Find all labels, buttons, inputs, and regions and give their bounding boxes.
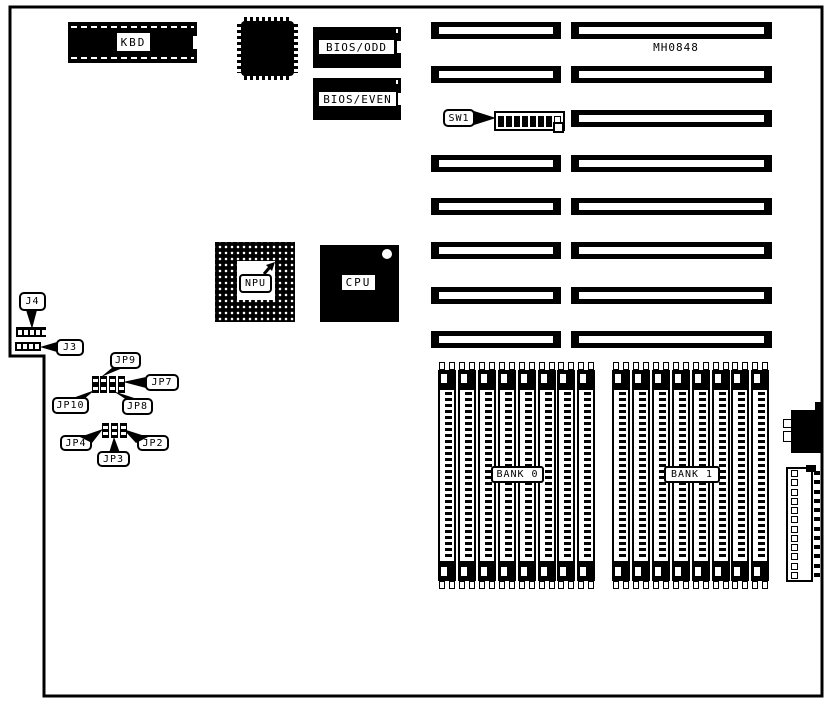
power-pin-square <box>791 470 798 477</box>
expansion-slot-segment-short <box>431 66 561 83</box>
simm-tab <box>529 581 535 589</box>
simm-tab-row <box>751 581 769 589</box>
simm-contact-body <box>751 388 769 563</box>
simm-tab-row <box>498 581 516 589</box>
cpu-chip: CPU <box>320 245 399 322</box>
power-pin-square <box>791 563 798 570</box>
power-connector-top-tab <box>806 465 816 472</box>
expansion-slot-segment-short <box>431 198 561 215</box>
simm-tab-row <box>672 362 690 370</box>
pin-square <box>17 344 21 349</box>
sw1-pointer <box>474 111 496 125</box>
jp10-label-bubble: JP10 <box>52 397 89 414</box>
simm-tab <box>489 581 495 589</box>
simm-tab <box>713 581 719 589</box>
power-pin-square <box>791 479 798 486</box>
simm-tab <box>713 362 719 370</box>
pin-square <box>30 330 34 335</box>
jumper-block-6 <box>111 423 118 438</box>
dip-switch-cell <box>514 116 520 127</box>
simm-clip-top <box>458 370 476 388</box>
simm-tab-row <box>478 362 496 370</box>
dip-switch-cell <box>538 116 544 127</box>
j3-connector <box>15 342 41 351</box>
simm-tab <box>703 581 709 589</box>
simm-tab <box>623 362 629 370</box>
simm-tab-row <box>692 362 710 370</box>
jp4-label-bubble: JP4 <box>60 435 92 451</box>
simm-socket <box>577 362 595 589</box>
simm-clip-top <box>731 370 749 388</box>
power-pin <box>814 564 820 568</box>
simm-clip-top <box>632 370 650 388</box>
simm-tab <box>643 581 649 589</box>
simm-tab <box>578 581 584 589</box>
simm-tab-row <box>731 581 749 589</box>
simm-tab-row <box>751 362 769 370</box>
din-port-upper <box>783 419 792 428</box>
simm-tab <box>529 362 535 370</box>
simm-contact-body <box>577 388 595 563</box>
simm-tab-row <box>518 581 536 589</box>
simm-clip-top <box>692 370 710 388</box>
simm-tab-row <box>458 581 476 589</box>
jp7-label-bubble: JP7 <box>145 374 179 391</box>
jp3-label-bubble: JP3 <box>97 451 130 467</box>
simm-clip-top <box>438 370 456 388</box>
simm-tab <box>558 362 564 370</box>
simm-socket <box>438 362 456 589</box>
simm-clip-bottom <box>712 563 730 581</box>
j3-label-bubble: J3 <box>56 339 84 356</box>
expansion-slot-segment-long <box>571 242 772 259</box>
simm-tab-row <box>557 581 575 589</box>
dip-switch-cell <box>546 116 552 127</box>
cpu-pin1-dot <box>382 249 392 259</box>
simm-contact-body <box>612 388 630 563</box>
simm-tab <box>588 581 594 589</box>
simm-tab-row <box>458 362 476 370</box>
simm-tab <box>588 362 594 370</box>
simm-clip-bottom <box>557 563 575 581</box>
simm-clip-bottom <box>518 563 536 581</box>
simm-tab-row <box>538 362 556 370</box>
simm-tab <box>519 362 525 370</box>
bank0-label-bubble: BANK 0 <box>491 466 544 483</box>
simm-tab-row <box>538 581 556 589</box>
simm-tab <box>578 362 584 370</box>
power-pin <box>814 536 820 540</box>
simm-tab-row <box>498 362 516 370</box>
simm-contact-stripes <box>584 392 591 559</box>
simm-tab <box>549 362 555 370</box>
power-pin <box>814 490 820 494</box>
simm-tab <box>613 362 619 370</box>
simm-tab <box>459 362 465 370</box>
power-pin-row <box>790 479 811 486</box>
simm-clip-bottom <box>731 563 749 581</box>
simm-contact-body <box>458 388 476 563</box>
power-pin-square <box>791 507 798 514</box>
simm-tab <box>469 581 475 589</box>
expansion-slot-segment-long <box>571 155 772 172</box>
simm-clip-top <box>478 370 496 388</box>
simm-tab <box>623 581 629 589</box>
bios-odd-label: BIOS/ODD <box>317 38 396 56</box>
simm-clip-bottom <box>498 563 516 581</box>
simm-contact-body <box>438 388 456 563</box>
expansion-slot-segment-long <box>571 110 772 127</box>
simm-tab <box>653 362 659 370</box>
jumper-block-4 <box>118 376 125 393</box>
simm-contact-stripes <box>639 392 646 559</box>
power-pin <box>814 527 820 531</box>
simm-tab <box>439 581 445 589</box>
simm-tab <box>633 362 639 370</box>
jumper-block-7 <box>120 423 127 438</box>
power-connector <box>786 467 813 582</box>
simm-clip-bottom <box>577 563 595 581</box>
simm-socket <box>612 362 630 589</box>
din-connector-body <box>791 410 822 453</box>
simm-tab <box>449 581 455 589</box>
keyboard-controller-chip <box>237 17 298 80</box>
dip-switch-cell <box>530 116 536 127</box>
simm-socket <box>557 362 575 589</box>
simm-tab <box>762 581 768 589</box>
power-pin <box>814 499 820 503</box>
kbd-dash-bottom <box>71 57 194 59</box>
simm-clip-bottom <box>751 563 769 581</box>
simm-tab <box>663 362 669 370</box>
simm-contact-stripes <box>619 392 626 559</box>
simm-tab <box>613 581 619 589</box>
simm-tab <box>673 581 679 589</box>
expansion-slot-segment-short <box>431 331 561 348</box>
simm-tab <box>519 581 525 589</box>
power-pin <box>814 554 820 558</box>
power-pin-row <box>790 526 811 533</box>
expansion-slot-segment-long <box>571 22 772 39</box>
power-pin-square <box>791 544 798 551</box>
simm-contact-stripes <box>564 392 571 559</box>
j4-connector <box>16 327 46 337</box>
simm-tab-row <box>438 581 456 589</box>
simm-tab <box>723 362 729 370</box>
jp7-pointer <box>123 377 146 388</box>
simm-tab-row <box>577 362 595 370</box>
power-pin <box>814 545 820 549</box>
simm-clip-top <box>672 370 690 388</box>
bank1-label-bubble: BANK 1 <box>664 466 720 483</box>
bios-even-pin1-tick <box>396 80 398 84</box>
power-pin <box>814 508 820 512</box>
pin-square <box>24 330 28 335</box>
simm-socket <box>632 362 650 589</box>
simm-clip-bottom <box>458 563 476 581</box>
expansion-slot-segment-short <box>431 242 561 259</box>
qfp-die <box>241 21 294 76</box>
jumper-block-5 <box>102 423 109 438</box>
dip-switch-cell <box>498 116 504 127</box>
simm-clip-top <box>712 370 730 388</box>
simm-tab <box>752 362 758 370</box>
simm-tab <box>703 362 709 370</box>
bios-even-label: BIOS/EVEN <box>317 90 398 108</box>
simm-clip-top <box>518 370 536 388</box>
simm-tab-row <box>632 362 650 370</box>
power-pin-square <box>791 535 798 542</box>
jumper-block-3 <box>109 376 116 393</box>
simm-tab-row <box>652 581 670 589</box>
simm-contact-stripes <box>738 392 745 559</box>
simm-clip-bottom <box>632 563 650 581</box>
simm-tab-row <box>612 581 630 589</box>
expansion-slot-segment-long <box>571 331 772 348</box>
kbd-dash-top <box>71 26 194 28</box>
power-pin-square <box>791 516 798 523</box>
simm-tab <box>499 362 505 370</box>
dip-switch-cell <box>522 116 528 127</box>
jp9-label-bubble: JP9 <box>110 352 141 369</box>
simm-tab <box>568 362 574 370</box>
power-pin-row <box>790 489 811 496</box>
simm-tab <box>742 362 748 370</box>
pin-square <box>29 344 33 349</box>
simm-tab <box>479 362 485 370</box>
simm-tab <box>693 362 699 370</box>
power-pin-row <box>790 498 811 505</box>
simm-clip-bottom <box>478 563 496 581</box>
simm-tab <box>479 581 485 589</box>
board-model-text: MH0848 <box>640 41 712 54</box>
simm-tab <box>499 581 505 589</box>
simm-tab <box>509 581 515 589</box>
simm-contact-body <box>731 388 749 563</box>
simm-socket <box>751 362 769 589</box>
simm-tab-row <box>731 362 749 370</box>
sw1-aux-square <box>553 122 564 133</box>
power-pin <box>814 573 820 577</box>
simm-tab <box>509 362 515 370</box>
simm-clip-bottom <box>612 563 630 581</box>
simm-tab <box>568 581 574 589</box>
power-pin-row <box>790 516 811 523</box>
simm-tab <box>549 581 555 589</box>
simm-clip-top <box>577 370 595 388</box>
simm-tab-row <box>632 581 650 589</box>
simm-tab <box>449 362 455 370</box>
power-pin-row <box>790 535 811 542</box>
simm-tab <box>439 362 445 370</box>
simm-contact-stripes <box>719 392 726 559</box>
simm-clip-bottom <box>692 563 710 581</box>
power-pin-row <box>790 553 811 560</box>
simm-contact-stripes <box>465 392 472 559</box>
simm-contact-stripes <box>445 392 452 559</box>
simm-tab <box>752 581 758 589</box>
simm-tab <box>489 362 495 370</box>
simm-clip-top <box>557 370 575 388</box>
jp8-label-bubble: JP8 <box>122 398 153 415</box>
bios-odd-chip: BIOS/ODD <box>313 27 401 68</box>
bios-odd-edge-notch <box>397 41 401 53</box>
simm-clip-top <box>751 370 769 388</box>
npu-label-bubble: NPU <box>239 274 272 293</box>
simm-tab <box>459 581 465 589</box>
expansion-slot-segment-long <box>571 66 772 83</box>
simm-tab <box>693 581 699 589</box>
simm-tab <box>539 362 545 370</box>
power-pin-row <box>790 544 811 551</box>
simm-clip-bottom <box>652 563 670 581</box>
simm-tab <box>663 581 669 589</box>
simm-clip-top <box>498 370 516 388</box>
simm-tab-row <box>518 362 536 370</box>
simm-tab-row <box>557 362 575 370</box>
simm-tab <box>732 581 738 589</box>
simm-tab-row <box>652 362 670 370</box>
simm-clip-top <box>612 370 630 388</box>
simm-contact-body <box>557 388 575 563</box>
simm-tab-row <box>672 581 690 589</box>
simm-tab <box>633 581 639 589</box>
simm-tab <box>539 581 545 589</box>
simm-tab-row <box>712 581 730 589</box>
simm-tab <box>742 581 748 589</box>
bios-even-chip: BIOS/EVEN <box>313 78 401 120</box>
simm-clip-top <box>538 370 556 388</box>
jumper-block-1 <box>92 376 99 393</box>
simm-tab <box>653 581 659 589</box>
pin-square <box>36 330 40 335</box>
simm-tab-row <box>612 362 630 370</box>
simm-contact-body <box>632 388 650 563</box>
dip-switch-cell <box>506 116 512 127</box>
expansion-slot-segment-short <box>431 155 561 172</box>
j3-pointer <box>40 342 57 352</box>
simm-tab-row <box>478 581 496 589</box>
simm-tab <box>732 362 738 370</box>
expansion-slot-segment-short <box>431 287 561 304</box>
j4-label-bubble: J4 <box>19 292 46 311</box>
simm-socket <box>458 362 476 589</box>
power-pin-square <box>791 498 798 505</box>
pin-square <box>35 344 39 349</box>
simm-clip-bottom <box>538 563 556 581</box>
jp2-label-bubble: JP2 <box>137 435 169 451</box>
power-pin-row <box>790 563 811 570</box>
jumper-block-2 <box>100 376 107 393</box>
power-pin-square <box>791 572 798 579</box>
power-pin-square <box>791 553 798 560</box>
simm-tab <box>558 581 564 589</box>
power-pin-square <box>791 489 798 496</box>
simm-contact-stripes <box>545 392 552 559</box>
simm-tab-row <box>692 581 710 589</box>
simm-clip-top <box>652 370 670 388</box>
expansion-slot-segment-long <box>571 287 772 304</box>
simm-tab <box>673 362 679 370</box>
power-pin-square <box>791 526 798 533</box>
power-pin <box>814 480 820 484</box>
bios-odd-pin1-tick <box>396 29 398 33</box>
din-port-lower <box>783 431 792 442</box>
sw1-label-bubble: SW1 <box>443 109 475 127</box>
simm-tab <box>469 362 475 370</box>
expansion-slot-segment-long <box>571 198 772 215</box>
kbd-label: KBD <box>117 33 150 51</box>
simm-contact-stripes <box>758 392 765 559</box>
simm-tab <box>643 362 649 370</box>
kbd-socket: KBD <box>68 22 197 63</box>
simm-tab-row <box>577 581 595 589</box>
simm-tab <box>762 362 768 370</box>
motherboard-diagram: KBD BIOS/ODD BIOS/EVEN MH0848 SW1 NPU CP… <box>0 0 828 705</box>
pin-square <box>18 330 22 335</box>
power-pin-row <box>790 572 811 579</box>
simm-socket <box>731 362 749 589</box>
power-pin-row <box>790 507 811 514</box>
pin-square <box>42 330 46 335</box>
power-pin <box>814 517 820 521</box>
expansion-slot-segment-short <box>431 22 561 39</box>
pin-square <box>23 344 27 349</box>
simm-tab <box>683 362 689 370</box>
kbd-edge-notch <box>193 36 197 49</box>
simm-tab-row <box>438 362 456 370</box>
din-connector-step <box>815 402 823 412</box>
simm-tab-row <box>712 362 730 370</box>
simm-clip-bottom <box>672 563 690 581</box>
simm-tab <box>683 581 689 589</box>
simm-clip-bottom <box>438 563 456 581</box>
cpu-label: CPU <box>342 275 375 290</box>
simm-tab <box>723 581 729 589</box>
